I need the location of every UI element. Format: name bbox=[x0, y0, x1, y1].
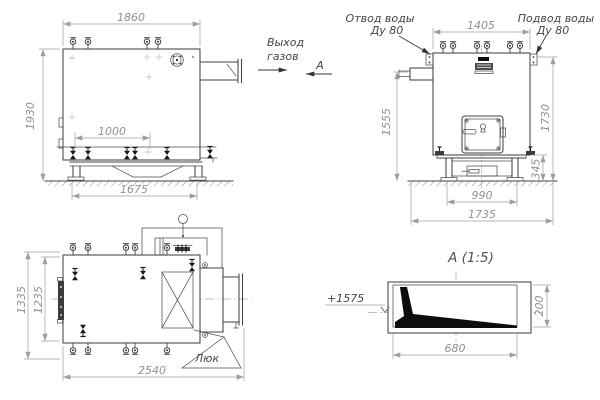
furnace-door-icon bbox=[462, 116, 506, 153]
flange-circle-icon bbox=[171, 54, 184, 67]
water-inlet-flange-icon bbox=[530, 54, 537, 65]
side-view: 1860 1930 1000 1675 Выход газов А bbox=[24, 11, 332, 200]
section-label: А bbox=[315, 59, 324, 72]
valve-icon bbox=[85, 38, 91, 49]
gas-duct-side bbox=[200, 60, 242, 83]
elevation-label: +1575 bbox=[327, 292, 364, 305]
front-view: 1405 1555 1730 345 990 1735 Отвод воды Д… bbox=[346, 12, 595, 225]
valve-icon bbox=[85, 343, 91, 354]
leader-arrow-icon bbox=[399, 36, 430, 54]
water-outlet-annotation: Отвод воды Ду 80 bbox=[346, 12, 430, 54]
front-dim-base-height-label: 345 bbox=[530, 159, 543, 180]
hinge-tab-icon bbox=[59, 118, 63, 127]
ground-hatch bbox=[408, 181, 557, 186]
valve-icon bbox=[132, 343, 138, 354]
front-dim-base-width-label: 1735 bbox=[468, 208, 496, 221]
water-outlet-flange-icon bbox=[426, 54, 433, 65]
ash-drawer-icon bbox=[467, 166, 497, 176]
side-dim-span-label: 1000 bbox=[98, 125, 126, 138]
gas-outlet-label-2: газов bbox=[267, 50, 299, 63]
section-arrow-annotation: А bbox=[306, 59, 332, 74]
side-dim-height-label: 1930 bbox=[24, 102, 37, 130]
front-dim-height-right-label: 1730 bbox=[539, 104, 552, 132]
valve-icon bbox=[70, 244, 76, 255]
valve-icon bbox=[132, 244, 138, 255]
side-flange-strip-icon bbox=[58, 278, 65, 324]
gas-duct-front bbox=[399, 68, 433, 80]
detail-view: А (1:5) +1575 680 200 bbox=[325, 250, 551, 359]
flange-fitting-icon bbox=[173, 245, 192, 253]
valve-icon bbox=[474, 42, 480, 53]
leader-arrow-icon bbox=[536, 36, 546, 54]
valve-icon bbox=[450, 42, 456, 53]
drain-valve-icon bbox=[207, 147, 213, 159]
front-dim-leg-span-label: 990 bbox=[472, 189, 493, 202]
safety-valve-icon bbox=[179, 215, 188, 224]
top-dim-outer-label: 1335 bbox=[15, 286, 28, 314]
valve-icon bbox=[123, 343, 129, 354]
hatch-label: Люк bbox=[194, 352, 220, 365]
front-dim-height-left-label: 1555 bbox=[380, 108, 393, 136]
detail-title: А (1:5) bbox=[447, 250, 494, 266]
top-view: Люк 1335 1235 2540 bbox=[15, 215, 252, 382]
detail-dim-width-label: 680 bbox=[445, 342, 466, 355]
valve-icon bbox=[70, 38, 76, 49]
valve-icon bbox=[144, 38, 150, 49]
valve-icon bbox=[123, 244, 129, 255]
valve-icon bbox=[507, 42, 513, 53]
base-frame-side bbox=[68, 162, 206, 180]
valve-icon bbox=[440, 42, 446, 53]
drawing-sheet: 1860 1930 1000 1675 Выход газов А bbox=[0, 0, 600, 400]
top-dim-length-label: 2540 bbox=[138, 364, 166, 377]
valve-icon bbox=[164, 343, 170, 354]
gas-duct-top bbox=[200, 263, 243, 338]
valve-icon bbox=[484, 42, 490, 53]
elevation-annotation: +1575 bbox=[325, 292, 389, 313]
boiler-drawing-svg: 1860 1930 1000 1675 Выход газов А bbox=[0, 0, 600, 400]
valve-icon bbox=[164, 244, 170, 255]
detail-dim-height-label: 200 bbox=[533, 296, 546, 317]
side-dim-width-label: 1860 bbox=[117, 11, 145, 24]
gas-outlet-annotation: Выход газов bbox=[258, 36, 304, 70]
water-inlet-annotation: Подвод воды Ду 80 bbox=[518, 12, 595, 54]
gas-outlet-label-1: Выход bbox=[267, 36, 304, 49]
front-dim-width-label: 1405 bbox=[467, 19, 495, 32]
water-inlet-label-2: Ду 80 bbox=[536, 24, 570, 37]
water-outlet-label-2: Ду 80 bbox=[370, 24, 404, 37]
side-dim-base-label: 1675 bbox=[120, 183, 148, 196]
valve-icon bbox=[517, 42, 523, 53]
valve-icon bbox=[155, 38, 161, 49]
top-dim-inner-label: 1235 bbox=[32, 286, 45, 314]
valve-icon bbox=[85, 244, 91, 255]
valve-icon bbox=[70, 343, 76, 354]
